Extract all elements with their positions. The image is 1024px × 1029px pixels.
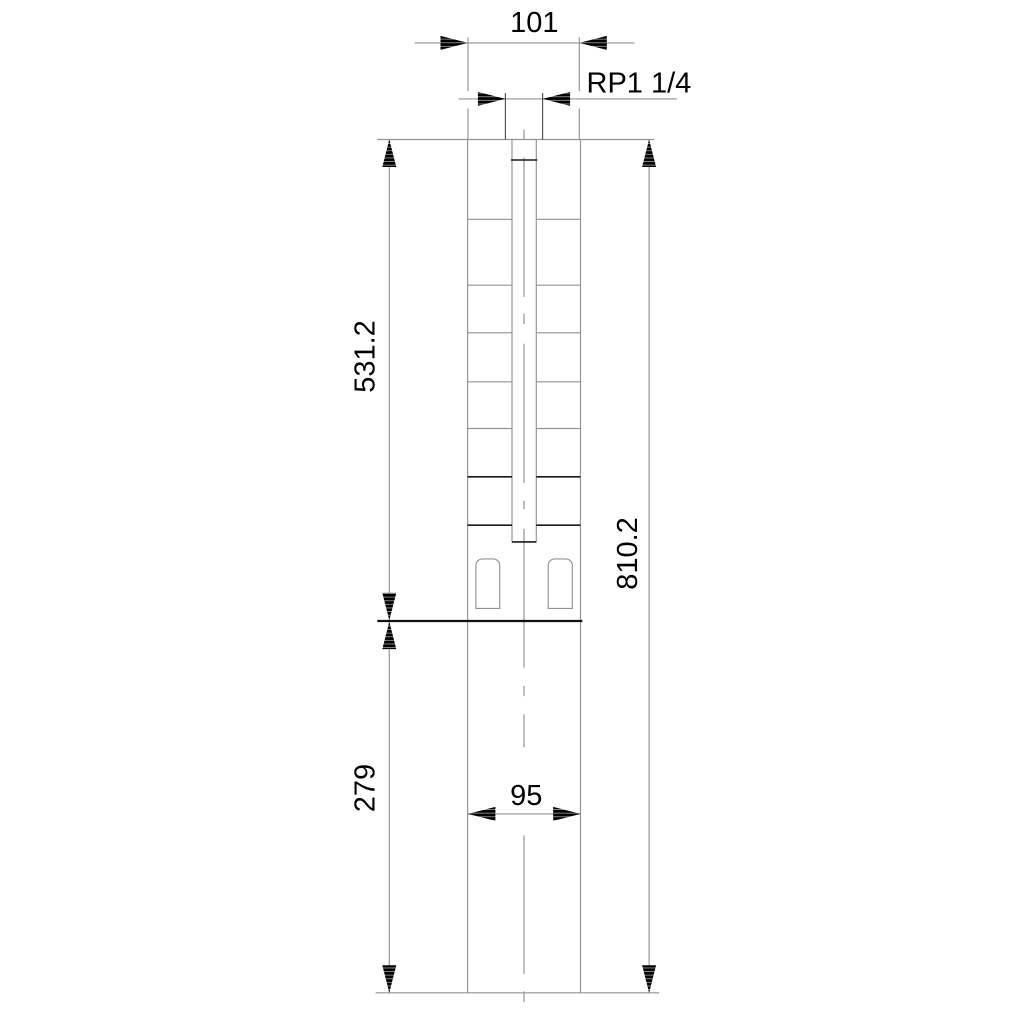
svg-text:810.2: 810.2 (612, 517, 644, 590)
svg-text:531.2: 531.2 (350, 320, 382, 393)
svg-text:RP1 1/4: RP1 1/4 (587, 67, 692, 99)
svg-text:95: 95 (510, 780, 542, 812)
svg-text:101: 101 (510, 7, 558, 39)
svg-text:279: 279 (349, 764, 381, 812)
